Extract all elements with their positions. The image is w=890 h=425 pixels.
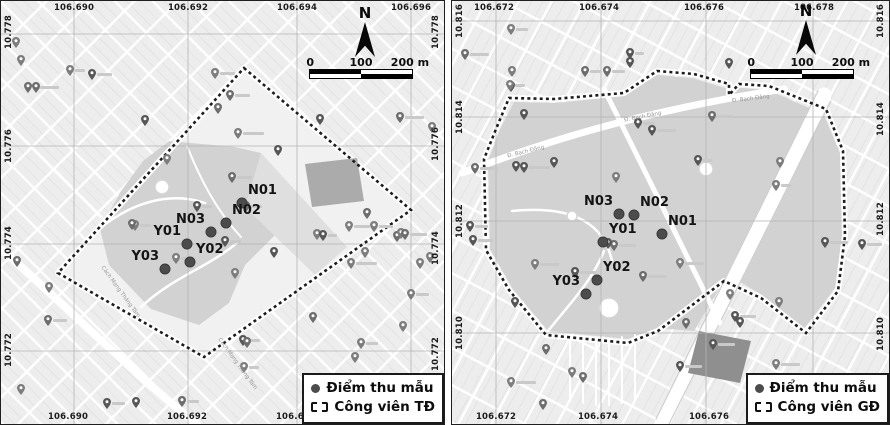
legend: Điểm thu mẫu Công viên TĐ <box>302 373 444 424</box>
sample-point-label-y03: Y03 <box>552 274 580 289</box>
map-panel-gia-dinh: Đ. Bạch ĐằngĐ. Bạch ĐằngĐ. Bạch Đằng 106… <box>451 0 890 425</box>
sample-point-dot-y01 <box>182 239 193 250</box>
sample-point-label-n02: N02 <box>640 195 669 210</box>
sample-point-label-n01: N01 <box>668 214 697 229</box>
sample-point-dot-n01 <box>657 229 668 240</box>
sample-point-icon <box>755 384 764 393</box>
sample-point-dot-n02 <box>221 218 232 229</box>
legend-sample-points-label: Điểm thu mẫu <box>770 380 877 396</box>
legend: Điểm thu mẫu Công viên GĐ <box>746 373 889 424</box>
legend-park-label: Công viên TĐ <box>334 399 435 415</box>
sample-point-label-y02: Y02 <box>196 242 224 257</box>
sample-point-dot-y03 <box>581 289 592 300</box>
scale-seg <box>310 74 361 78</box>
sample-point-dot-y03 <box>160 264 171 275</box>
sample-point-label-n03: N03 <box>584 194 613 209</box>
legend-sample-points-label: Điểm thu mẫu <box>326 380 433 396</box>
legend-row-sample-points: Điểm thu mẫu <box>755 380 880 396</box>
sample-point-label-n02: N02 <box>232 203 261 218</box>
scale-seg <box>751 74 802 78</box>
legend-row-park-boundary: Công viên GĐ <box>755 399 880 415</box>
legend-row-sample-points: Điểm thu mẫu <box>311 380 435 396</box>
scale-tick-100: 100 <box>791 56 814 69</box>
park-boundary-icon <box>311 402 328 412</box>
north-label: N <box>800 4 813 19</box>
scale-tick-labels: 0 100 200 m <box>750 56 854 69</box>
scale-seg <box>802 74 853 78</box>
scale-bar: 0 100 200 m <box>309 56 413 79</box>
scale-tick-0: 0 <box>306 56 314 69</box>
sample-point-dot-y02 <box>592 275 603 286</box>
sample-point-label-y01: Y01 <box>153 224 181 239</box>
scale-seg <box>361 74 412 78</box>
scale-tick-labels: 0 100 200 m <box>309 56 413 69</box>
scale-bar-rects <box>309 69 413 79</box>
map-panel-tao-dan: Cách Mạng Tháng TámCách Mạng Tháng Tám 1… <box>0 0 445 425</box>
sample-point-dot-y01 <box>598 237 609 248</box>
north-arrow-icon <box>352 22 379 57</box>
scale-tick-200m: 200 m <box>391 56 429 69</box>
north-label: N <box>359 6 372 21</box>
sample-point-label-y01: Y01 <box>609 222 637 237</box>
sample-point-label-y03: Y03 <box>131 249 159 264</box>
sample-point-dot-n03 <box>614 209 625 220</box>
north-arrow: N <box>786 4 826 55</box>
sample-point-label-n01: N01 <box>248 183 277 198</box>
sample-point-dot-n03 <box>206 227 217 238</box>
north-arrow-icon <box>793 20 820 55</box>
park-boundary-icon <box>755 402 772 412</box>
scale-bar: 0 100 200 m <box>750 56 854 79</box>
legend-park-label: Công viên GĐ <box>778 399 880 415</box>
scale-tick-0: 0 <box>747 56 755 69</box>
sample-point-dot-n02 <box>629 210 640 221</box>
sample-point-dot-y02 <box>185 257 196 268</box>
north-arrow: N <box>345 6 385 57</box>
scale-bar-rects <box>750 69 854 79</box>
legend-row-park-boundary: Công viên TĐ <box>311 399 435 415</box>
scale-tick-100: 100 <box>350 56 373 69</box>
sample-point-label-y02: Y02 <box>603 260 631 275</box>
sample-point-icon <box>311 384 320 393</box>
scale-tick-200m: 200 m <box>832 56 870 69</box>
figure-two-park-maps: Cách Mạng Tháng TámCách Mạng Tháng Tám 1… <box>0 0 890 425</box>
